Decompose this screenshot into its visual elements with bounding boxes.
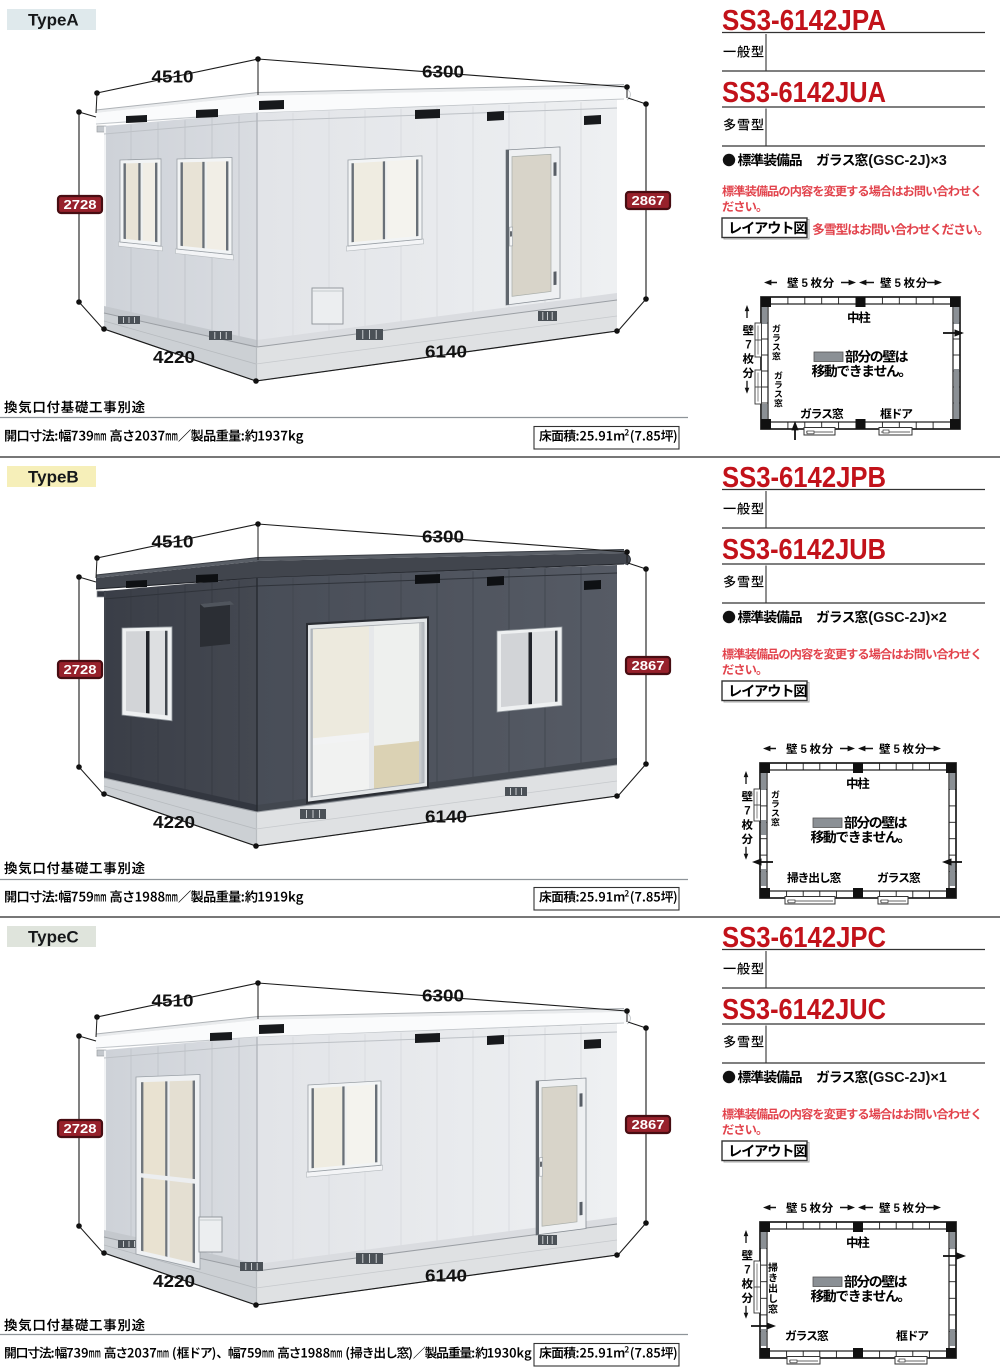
svg-text:4220: 4220 (153, 812, 195, 832)
svg-text:6140: 6140 (425, 807, 467, 827)
svg-text:5: 5 (801, 1203, 808, 1215)
svg-text:4510: 4510 (152, 991, 194, 1011)
svg-text:4510: 4510 (152, 67, 194, 87)
svg-text:5: 5 (801, 744, 808, 756)
svg-text:5: 5 (802, 278, 809, 290)
svg-text:(GSC-2J)×2: (GSC-2J)×2 (868, 610, 947, 626)
svg-text:6300: 6300 (422, 986, 464, 1006)
svg-text:TypeA: TypeA (28, 11, 79, 30)
svg-text:5: 5 (895, 278, 902, 290)
svg-text:7: 7 (744, 806, 750, 818)
svg-text:2867: 2867 (632, 658, 665, 673)
svg-text:4220: 4220 (153, 347, 195, 367)
svg-text:(GSC-2J)×3: (GSC-2J)×3 (868, 153, 947, 169)
svg-text:SS3-6142JUB: SS3-6142JUB (722, 534, 886, 566)
svg-text:TypeC: TypeC (28, 928, 79, 947)
svg-text:(GSC-2J)×1: (GSC-2J)×1 (868, 1070, 947, 1086)
svg-text:6140: 6140 (425, 1266, 467, 1286)
svg-text:SS3-6142JUA: SS3-6142JUA (722, 77, 886, 109)
svg-text:TypeB: TypeB (28, 468, 79, 487)
svg-text:2728: 2728 (64, 662, 97, 677)
svg-text:6140: 6140 (425, 342, 467, 362)
svg-text:2728: 2728 (64, 1121, 97, 1136)
svg-text:2867: 2867 (632, 193, 665, 208)
svg-text:4510: 4510 (152, 532, 194, 552)
svg-text:6300: 6300 (422, 62, 464, 82)
svg-text:6300: 6300 (422, 527, 464, 547)
svg-text:SS3-6142JUC: SS3-6142JUC (722, 994, 886, 1026)
svg-text:7: 7 (744, 1265, 750, 1277)
svg-text:2728: 2728 (64, 197, 97, 212)
svg-text:5: 5 (894, 744, 901, 756)
svg-text:2867: 2867 (632, 1117, 665, 1132)
svg-text:4220: 4220 (153, 1271, 195, 1291)
svg-text:7: 7 (745, 340, 751, 352)
svg-text:5: 5 (894, 1203, 901, 1215)
